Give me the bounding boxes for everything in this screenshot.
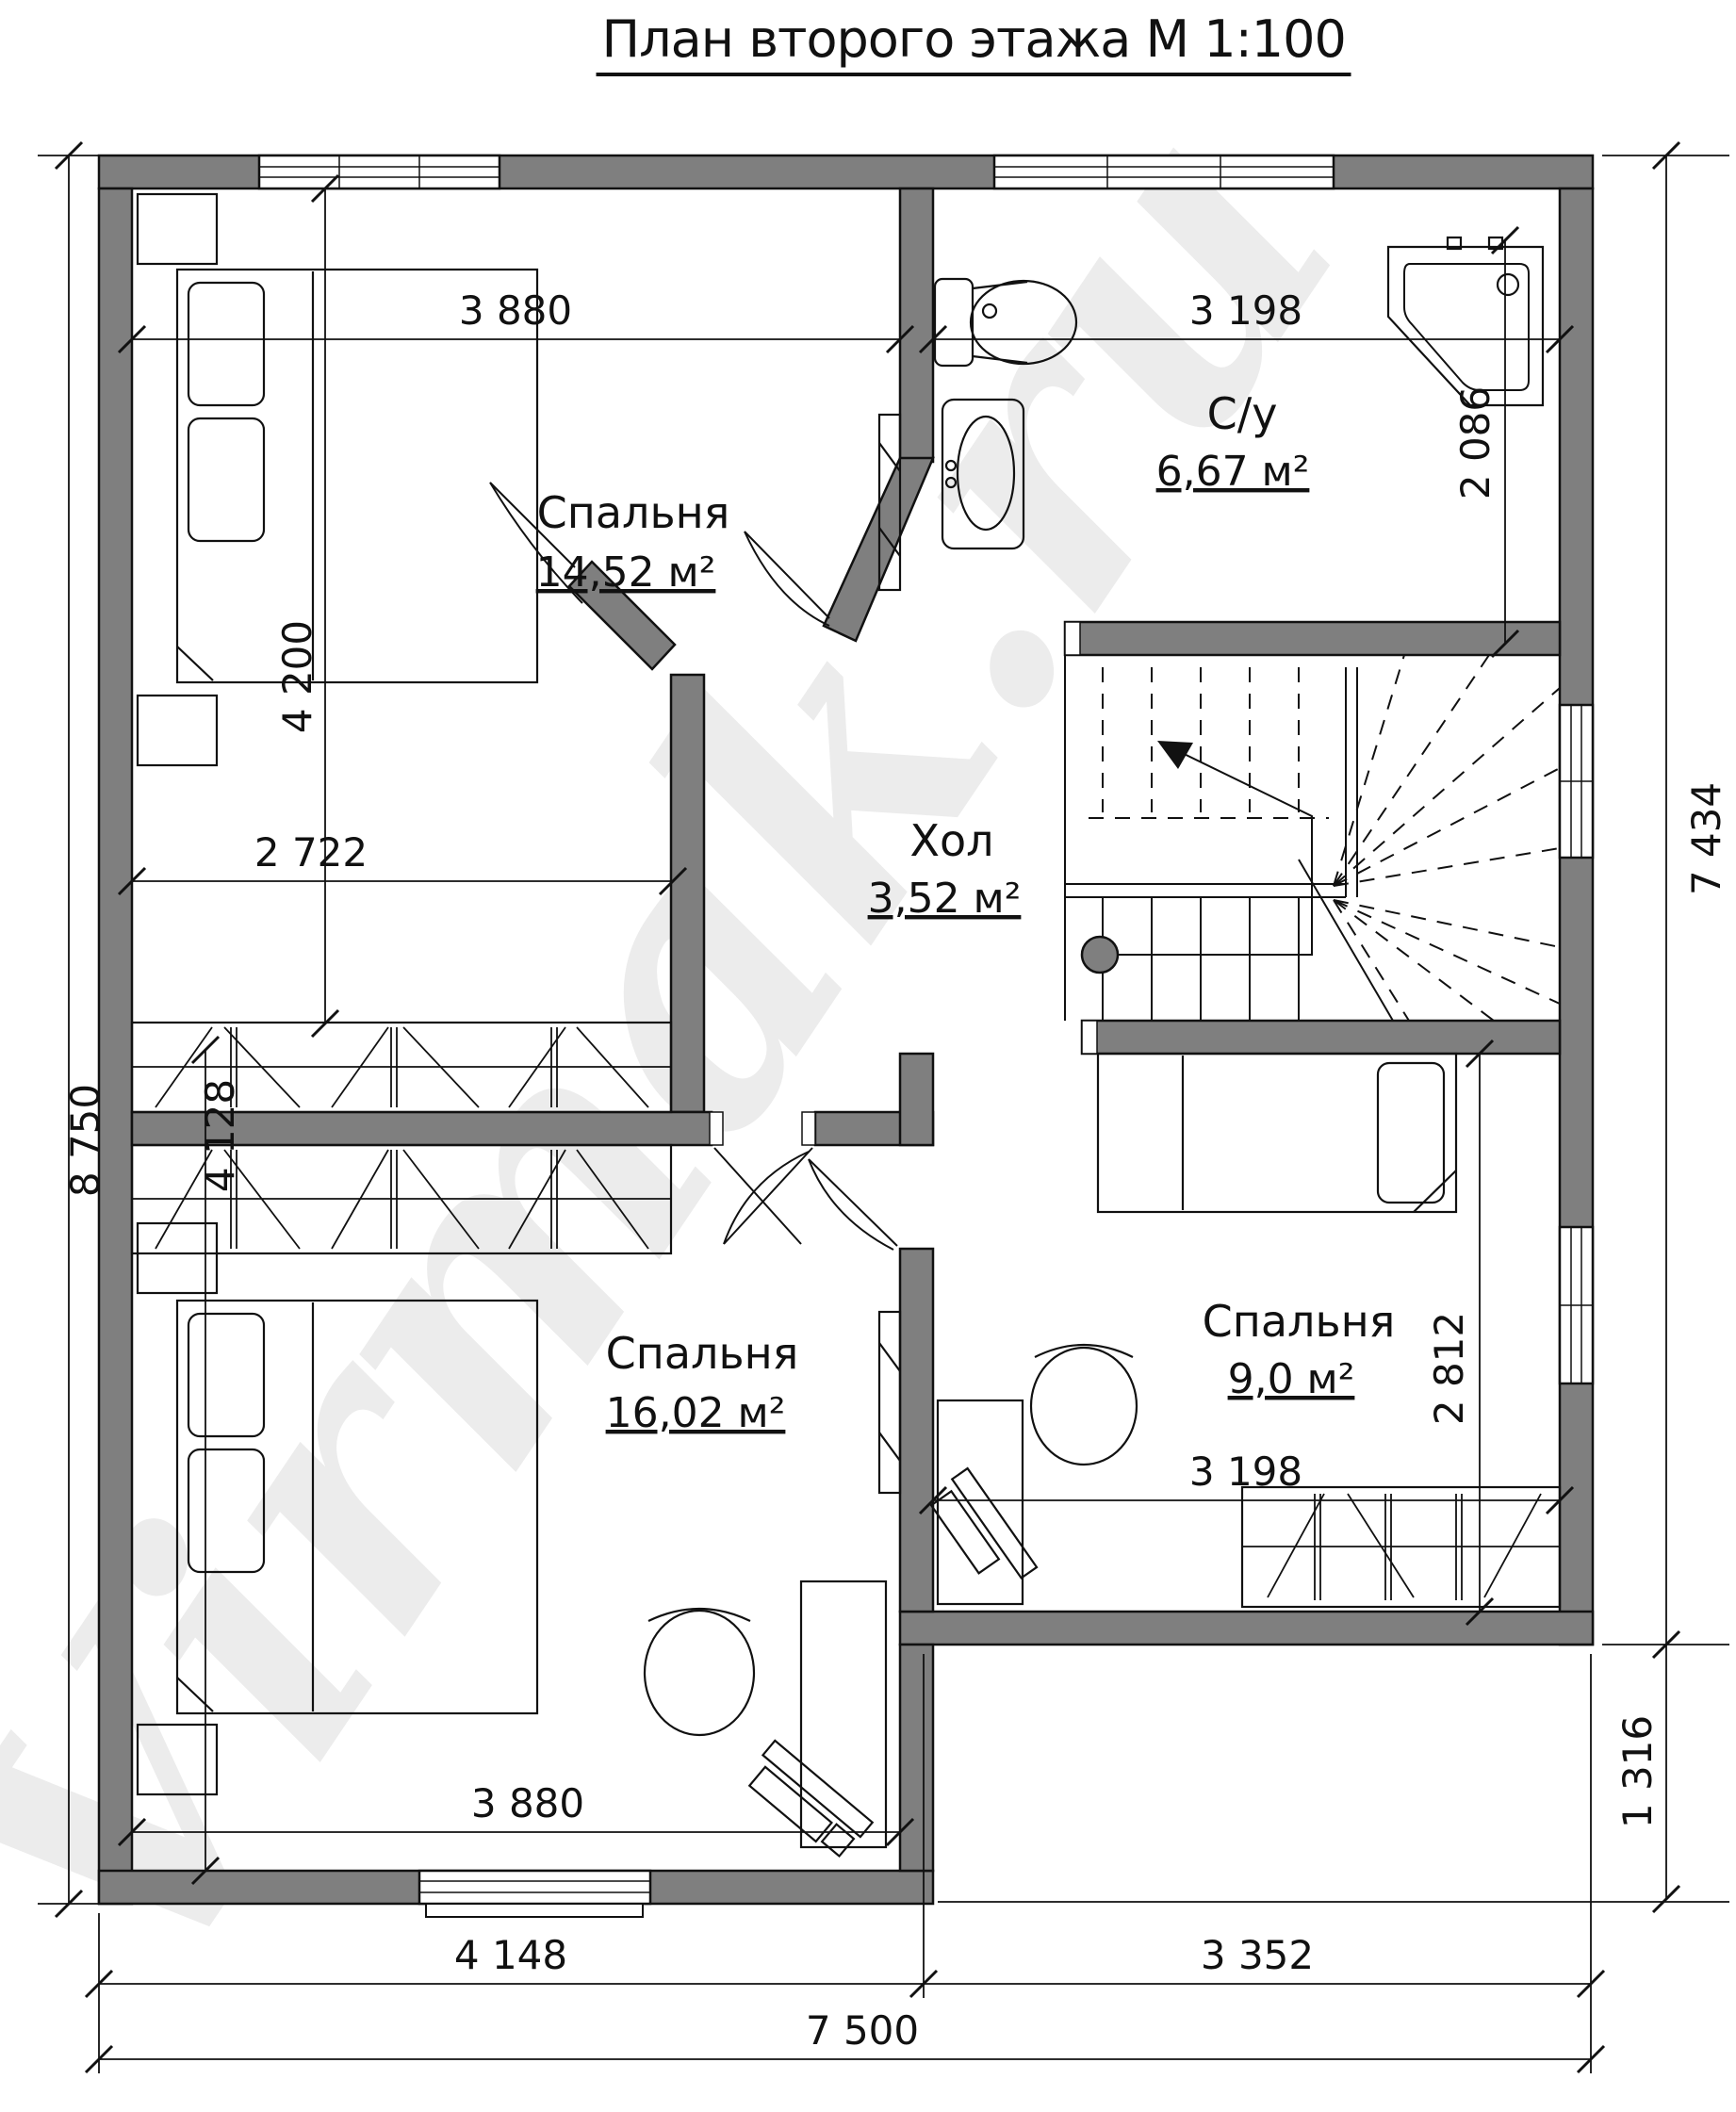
dim-notch-depth: 1 316 (1614, 1715, 1661, 1828)
dim-closet-width: 2 722 (254, 829, 368, 876)
wardrobe-icon (1242, 1487, 1560, 1607)
computer-icon (743, 1741, 873, 1861)
pillow-icon (188, 1449, 264, 1572)
pillow-icon (188, 283, 264, 405)
walls (99, 156, 1593, 1904)
sink-icon (942, 400, 1024, 548)
wall-bathroom-left (900, 188, 933, 462)
floor-plan-page: { "title": "План второго этажа М 1:100",… (0, 0, 1736, 2092)
dim-bedroom1-depth: 4 200 (274, 620, 320, 733)
dim-bathroom-width: 3 198 (1189, 287, 1302, 334)
pillow-icon (1378, 1063, 1444, 1203)
nightstand-icon (138, 194, 217, 264)
toilet-icon (935, 279, 1076, 366)
wall-right (1560, 188, 1593, 1645)
door-jamb (1065, 622, 1080, 655)
dim-bedroom2-depth: 4 128 (197, 1079, 243, 1192)
wall-left (99, 188, 132, 1904)
bed-icon (1098, 1054, 1456, 1212)
room-labels: Спальня 14,52 м² С/у 6,67 м² Хол 3,52 м²… (536, 388, 1396, 1437)
nightstand-icon (138, 696, 217, 765)
stairs-direction-arrow (1118, 746, 1312, 955)
door-bedroom2 (714, 1148, 812, 1244)
dim-bathroom-depth: 2 086 (1452, 386, 1499, 499)
dim-bedroom1-width: 3 880 (459, 287, 572, 334)
window-top-right (994, 156, 1334, 188)
room-label-bedroom3: Спальня (1203, 1296, 1396, 1347)
office-chair-icon (645, 1609, 754, 1735)
room-label-bathroom: С/у (1207, 388, 1278, 439)
office-chair-icon (1031, 1345, 1137, 1465)
room-area-bathroom: 6,67 м² (1156, 448, 1310, 496)
dim-bottom-left-width: 4 148 (454, 1932, 567, 1978)
stairs-upper-treads (1089, 667, 1329, 818)
stairs-column (1082, 937, 1118, 973)
dim-overall-depth: 8 750 (62, 1084, 108, 1197)
room-label-bedroom1: Спальня (537, 487, 730, 538)
room-area-hall: 3,52 м² (868, 875, 1022, 923)
wall-stairs-bottom (1082, 1021, 1560, 1054)
window-top-left (259, 156, 500, 188)
room-label-bedroom2: Спальня (606, 1328, 799, 1379)
door-bedroom3 (809, 1159, 897, 1250)
window-right-bedroom3 (1560, 1227, 1593, 1383)
door-jamb (802, 1112, 815, 1145)
wall-bedroom3-left-a (900, 1054, 933, 1145)
room-area-bedroom1: 14,52 м² (536, 548, 716, 597)
computer-icon (925, 1468, 1037, 1596)
wall-notch (900, 1645, 933, 1871)
dim-bedroom3-depth: 2 812 (1426, 1312, 1472, 1425)
window-right-stairs (1560, 705, 1593, 858)
dim-bedroom2-width: 3 880 (471, 1780, 584, 1826)
window-bottom (419, 1871, 650, 1917)
stairs-winder-fan (1334, 655, 1560, 1021)
dim-right-side-depth: 7 434 (1683, 782, 1729, 895)
room-area-bedroom2: 16,02 м² (606, 1389, 786, 1437)
dim-overall-width: 7 500 (806, 2007, 919, 2054)
door-bathroom (745, 532, 829, 626)
tv-panel-icon (879, 1312, 900, 1493)
page-title: План второго этажа М 1:100 (597, 9, 1351, 76)
furniture-bedroom2 (138, 1223, 900, 1861)
dim-bottom-right-width: 3 352 (1201, 1932, 1314, 1978)
floor-plan-drawing: 3 880 3 198 2 722 3 198 3 880 4 148 3 35… (0, 0, 1736, 2092)
dimensions: 3 880 3 198 2 722 3 198 3 880 4 148 3 35… (38, 142, 1729, 2073)
pillow-icon (188, 418, 264, 541)
wall-bathroom-bottom (1065, 622, 1560, 655)
room-area-bedroom3: 9,0 м² (1228, 1355, 1355, 1403)
wall-closet-right (671, 675, 704, 1112)
bed-icon (177, 1301, 537, 1713)
door-jamb (1082, 1021, 1097, 1054)
room-label-hall: Хол (909, 815, 993, 866)
wall-bedroom3-left-b (900, 1249, 933, 1612)
bathtub-icon (1388, 237, 1543, 405)
dim-bedroom3-width: 3 198 (1189, 1449, 1302, 1495)
door-jamb (710, 1112, 723, 1145)
pillow-icon (188, 1314, 264, 1436)
wall-bottom-right (900, 1612, 1593, 1645)
furniture-bedroom1 (138, 194, 900, 765)
stairs (1065, 655, 1560, 1021)
